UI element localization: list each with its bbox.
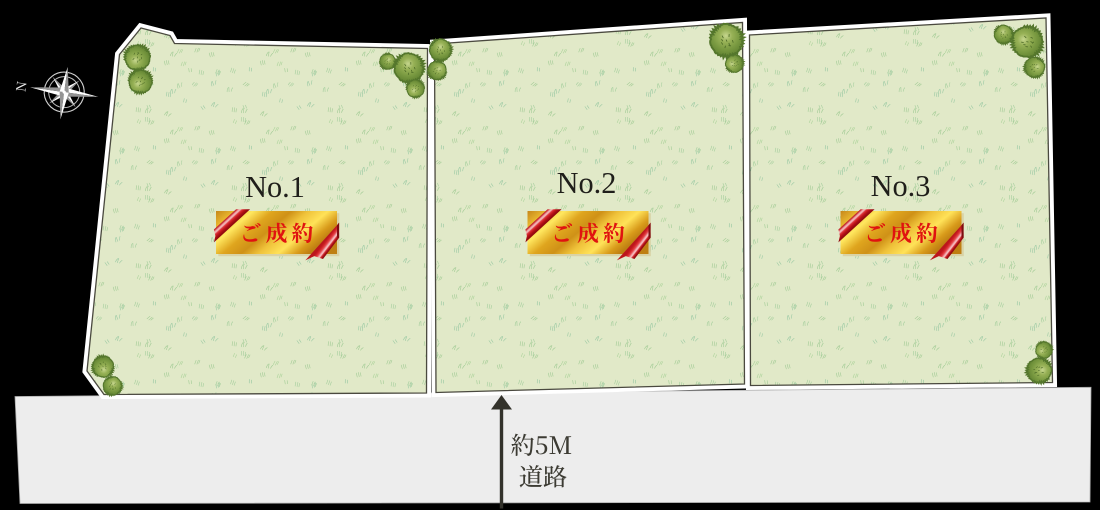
- svg-text:No.2: No.2: [557, 166, 617, 200]
- svg-text:No.1: No.1: [245, 170, 305, 204]
- svg-text:No.3: No.3: [871, 169, 931, 203]
